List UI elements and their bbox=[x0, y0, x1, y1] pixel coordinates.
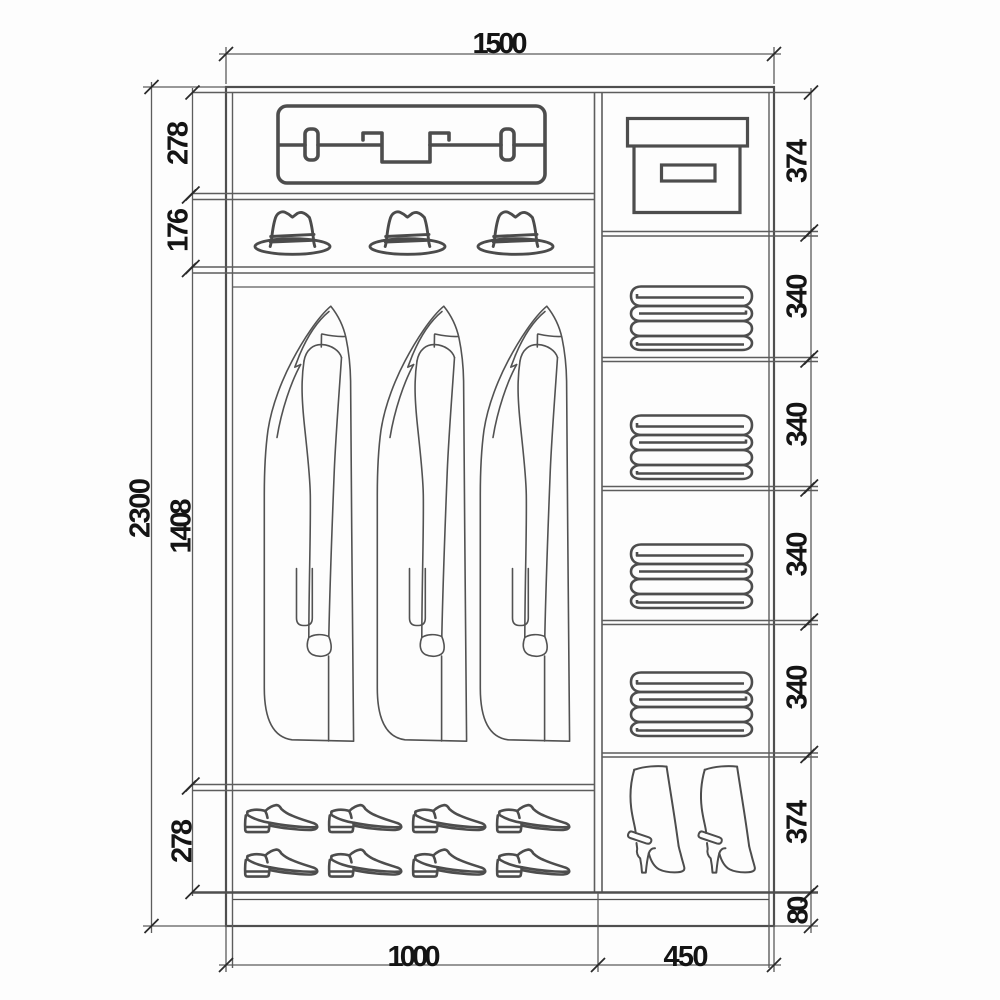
svg-text:1000: 1000 bbox=[388, 941, 441, 973]
svg-text:340: 340 bbox=[781, 402, 813, 447]
svg-text:1408: 1408 bbox=[165, 499, 197, 554]
svg-text:340: 340 bbox=[781, 665, 813, 710]
svg-text:80: 80 bbox=[782, 896, 814, 925]
svg-text:278: 278 bbox=[166, 819, 198, 863]
svg-text:2300: 2300 bbox=[124, 478, 156, 538]
svg-text:278: 278 bbox=[162, 121, 194, 165]
svg-text:450: 450 bbox=[664, 941, 709, 973]
svg-text:374: 374 bbox=[781, 800, 813, 844]
svg-text:340: 340 bbox=[781, 274, 813, 319]
svg-text:1500: 1500 bbox=[473, 28, 528, 60]
svg-text:340: 340 bbox=[781, 532, 813, 577]
svg-text:176: 176 bbox=[162, 208, 194, 252]
svg-text:374: 374 bbox=[781, 139, 813, 183]
